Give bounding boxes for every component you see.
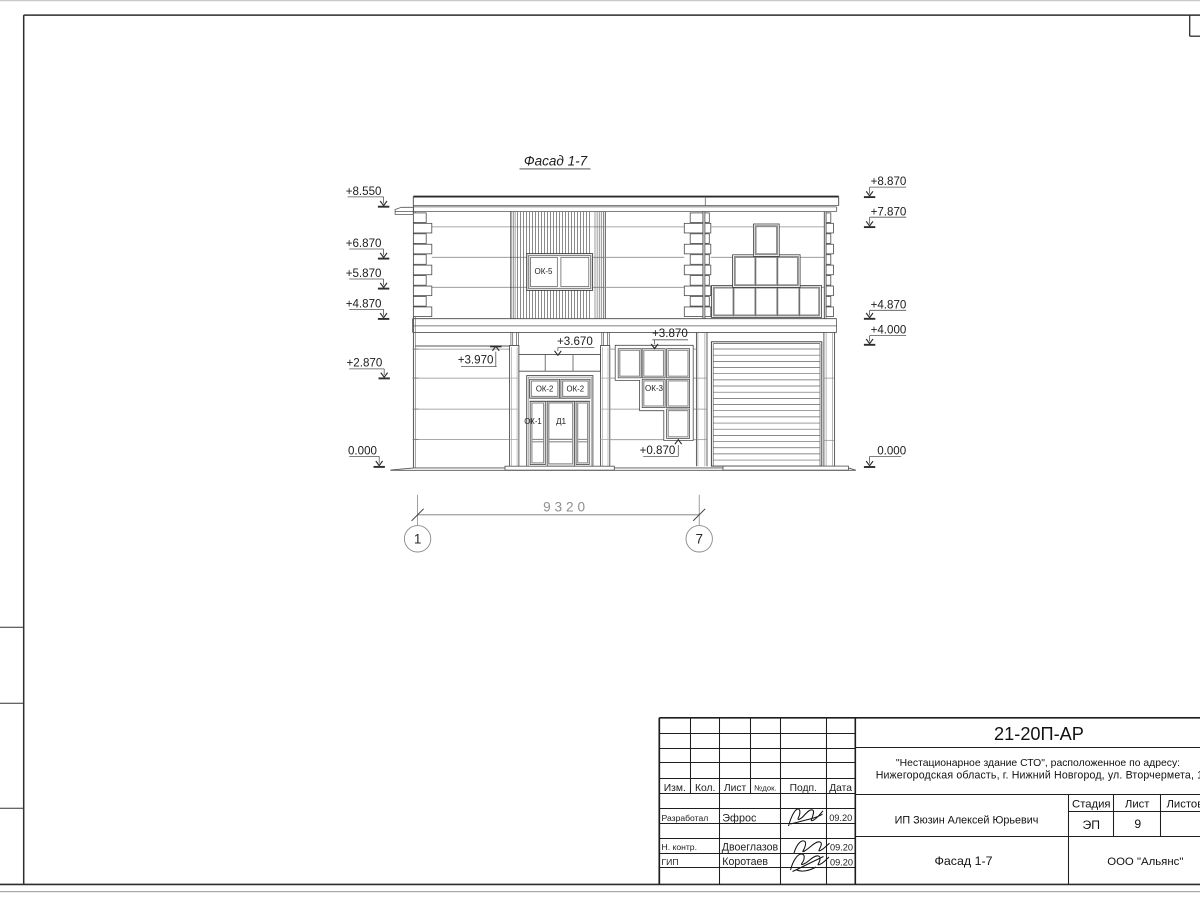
svg-text:Н. контр.: Н. контр. (662, 842, 697, 852)
svg-text:+3.970: +3.970 (458, 354, 494, 367)
svg-text:+4.870: +4.870 (871, 298, 907, 311)
svg-text:ОК-3: ОК-3 (645, 384, 664, 393)
svg-text:Подп.: Подп. (790, 783, 817, 794)
svg-text:Стадия: Стадия (1072, 799, 1111, 811)
svg-text:Нижегородская область, г. Нижн: Нижегородская область, г. Нижний Новгоро… (876, 769, 1200, 781)
svg-text:Д1: Д1 (556, 417, 567, 426)
svg-text:+3.870: +3.870 (652, 327, 688, 340)
svg-text:+8.870: +8.870 (871, 175, 907, 188)
svg-text:Кол.: Кол. (695, 783, 715, 794)
svg-text:№док.: №док. (754, 783, 776, 792)
svg-text:ОК-2: ОК-2 (567, 385, 585, 394)
svg-text:Дата: Дата (829, 783, 852, 794)
svg-text:Лист: Лист (724, 783, 747, 794)
svg-text:+4.870: +4.870 (346, 298, 382, 311)
svg-text:ОК-2: ОК-2 (536, 385, 554, 394)
svg-text:ГИП: ГИП (662, 857, 679, 867)
svg-text:ООО "Альянс": ООО "Альянс" (1107, 856, 1183, 868)
svg-text:+4.000: +4.000 (871, 324, 907, 337)
svg-text:ЭП: ЭП (1083, 818, 1101, 832)
svg-text:0.000: 0.000 (877, 444, 906, 457)
svg-text:7: 7 (695, 532, 703, 547)
svg-text:ОК-1: ОК-1 (524, 417, 542, 426)
svg-text:9: 9 (1134, 817, 1141, 831)
svg-text:Эфрос: Эфрос (722, 812, 757, 824)
svg-text:1: 1 (414, 532, 422, 547)
svg-text:"Нестационарное здание СТО", р: "Нестационарное здание СТО", расположенн… (896, 758, 1180, 769)
svg-text:0.000: 0.000 (348, 444, 377, 457)
svg-text:09.20: 09.20 (829, 813, 852, 823)
svg-text:9320: 9320 (543, 500, 589, 515)
svg-text:Изм.: Изм. (664, 783, 686, 794)
svg-text:ИП Зюзин Алексей Юрьевич: ИП Зюзин Алексей Юрьевич (895, 814, 1039, 826)
svg-text:+2.870: +2.870 (347, 356, 383, 369)
svg-text:21-20П-АР: 21-20П-АР (994, 724, 1084, 744)
svg-text:Фасад 1-7: Фасад 1-7 (935, 854, 993, 868)
svg-text:09.20: 09.20 (830, 857, 853, 867)
svg-text:+8.550: +8.550 (346, 185, 382, 198)
svg-text:+3.670: +3.670 (557, 335, 593, 348)
svg-text:Разработал: Разработал (662, 813, 709, 823)
svg-text:ОК-5: ОК-5 (535, 267, 554, 276)
svg-text:+5.870: +5.870 (346, 267, 382, 280)
svg-text:Листов: Листов (1167, 799, 1200, 811)
svg-text:09.20: 09.20 (830, 842, 853, 852)
svg-text:Лист: Лист (1125, 799, 1150, 811)
svg-text:Фасад 1-7: Фасад 1-7 (524, 154, 588, 169)
svg-text:Коротаев: Коротаев (722, 856, 768, 868)
svg-text:+7.870: +7.870 (871, 205, 907, 218)
svg-text:+0.870: +0.870 (640, 444, 676, 457)
svg-text:+6.870: +6.870 (346, 237, 382, 250)
svg-text:Двоеглазов: Двоеглазов (722, 841, 779, 853)
